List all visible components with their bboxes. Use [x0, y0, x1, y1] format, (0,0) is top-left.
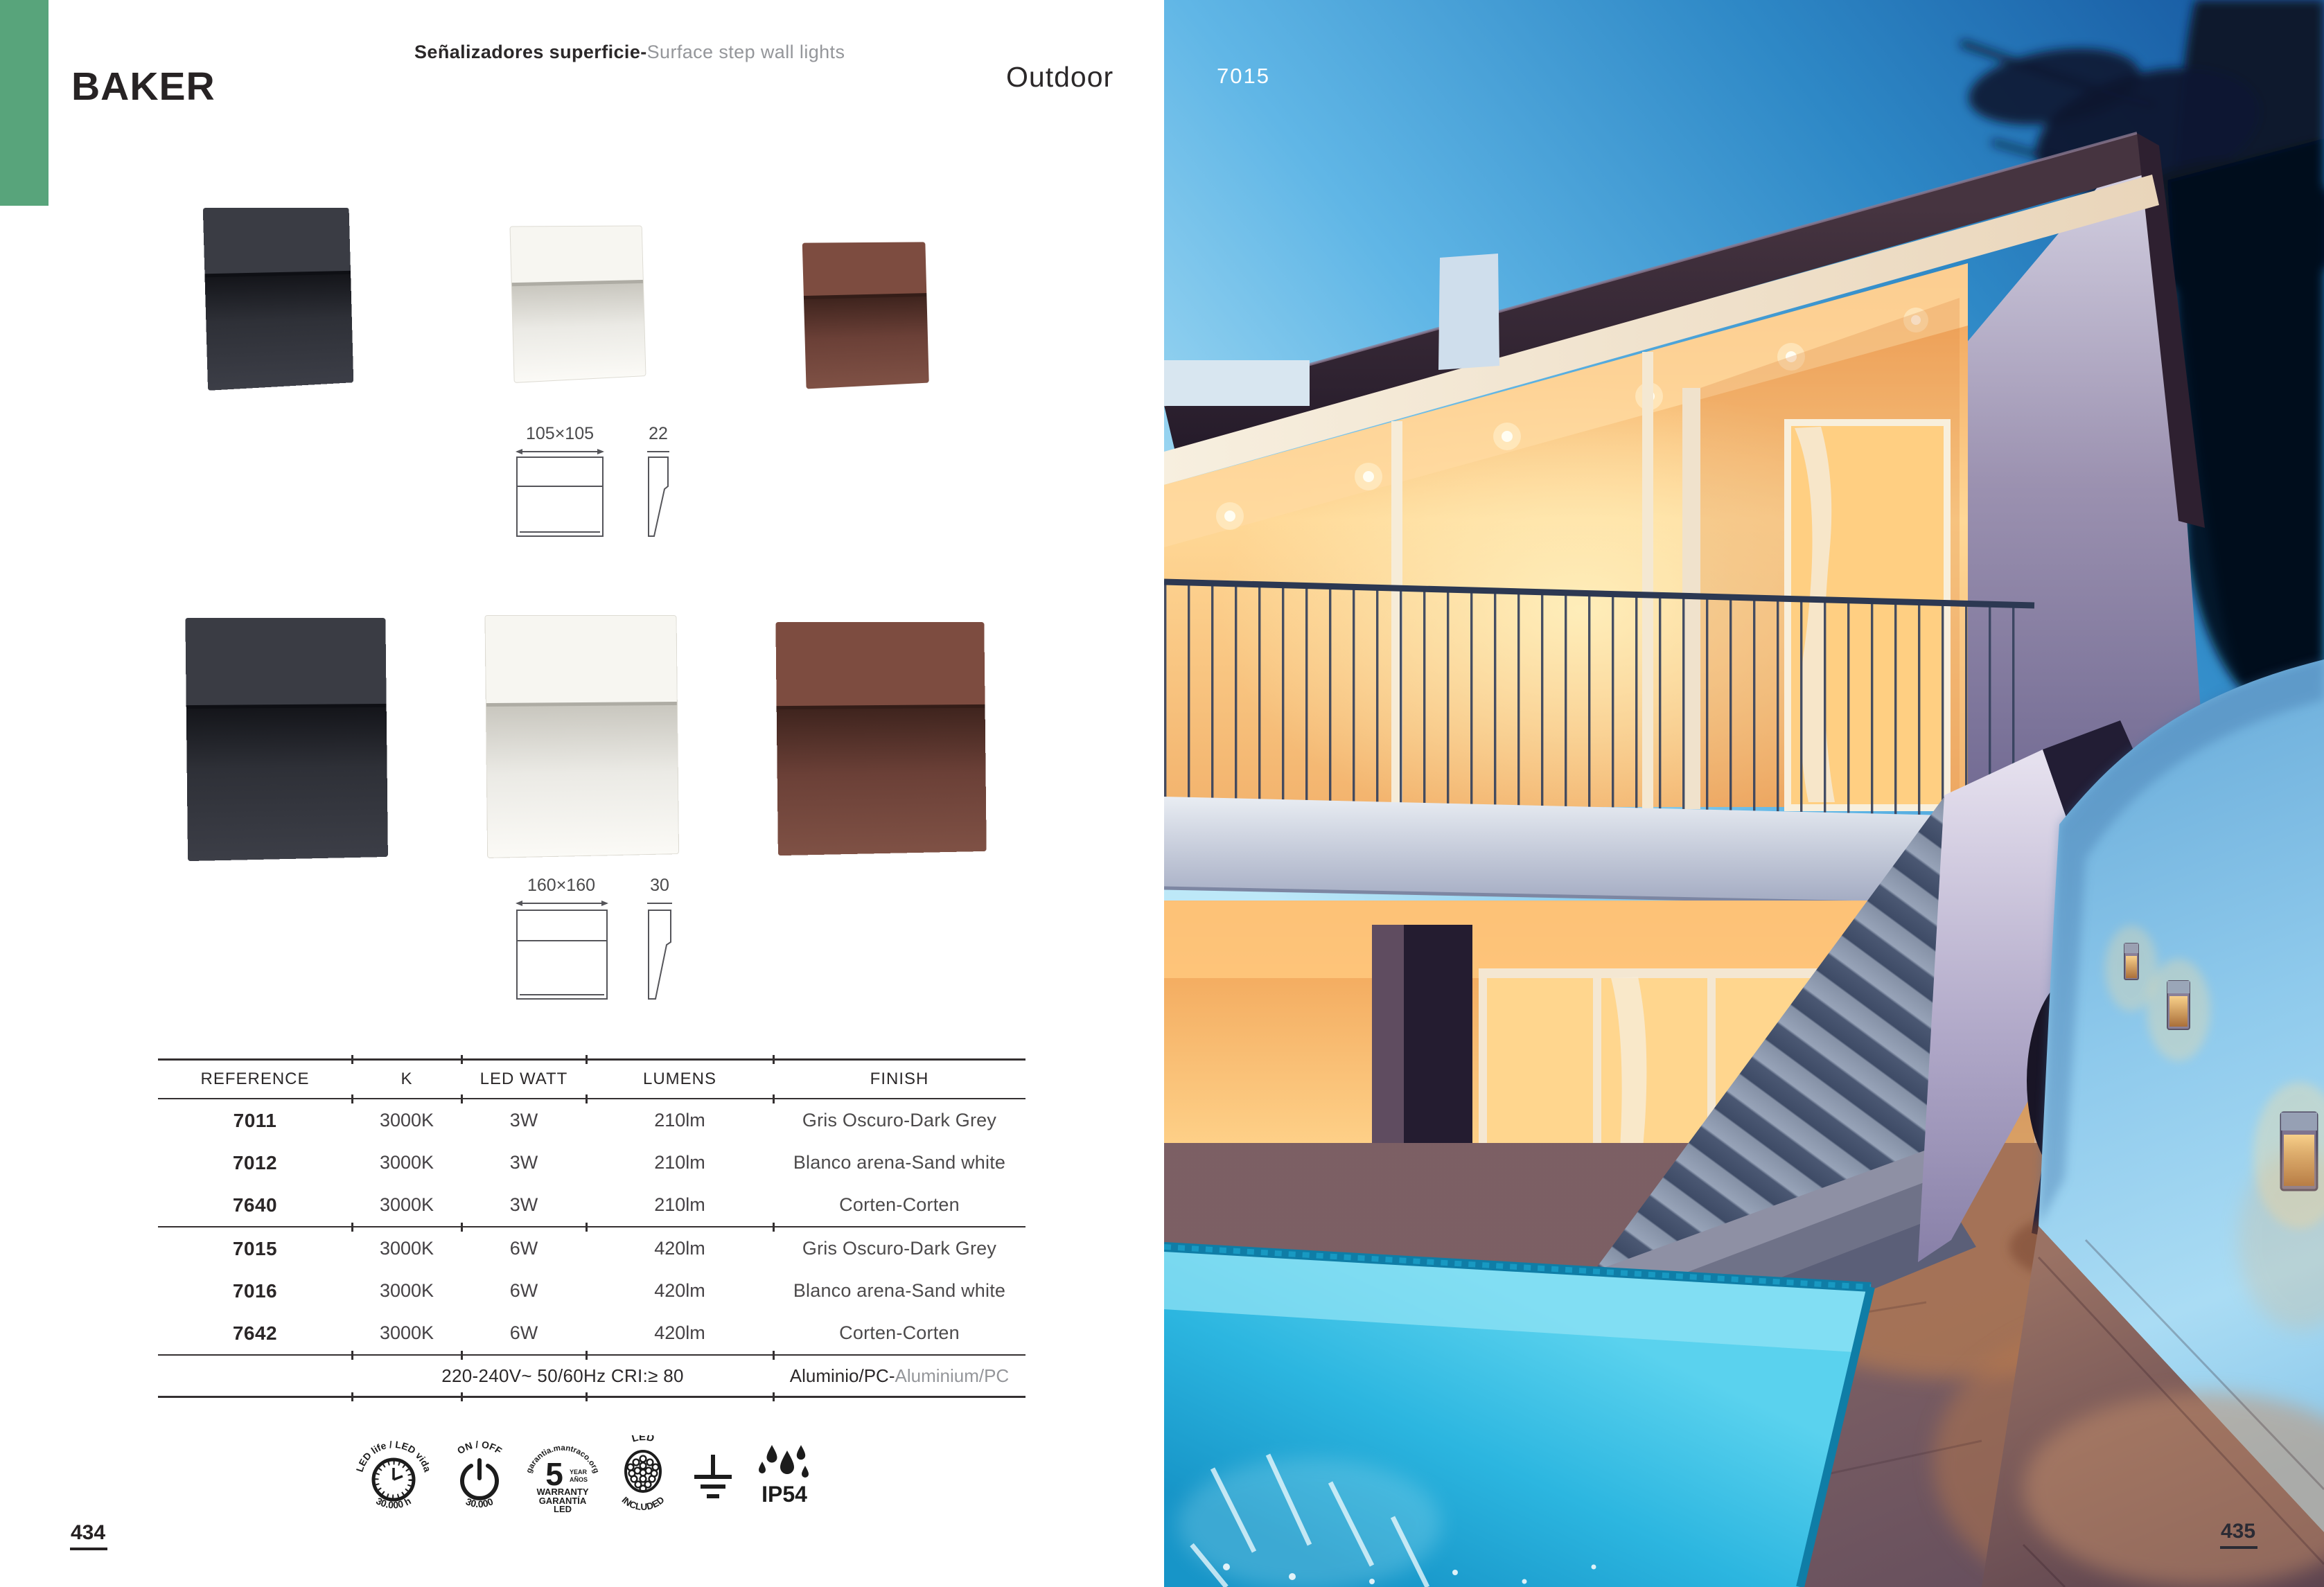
cell-reference: 7016 — [158, 1280, 352, 1302]
cell-lumens: 210lm — [586, 1110, 773, 1131]
cell-reference: 7640 — [158, 1194, 352, 1216]
svg-text:30.000 h: 30.000 h — [374, 1495, 413, 1510]
page-number-right: 435 — [2220, 1520, 2257, 1549]
table-rule — [158, 1226, 1025, 1227]
material-label-es: Aluminio/PC- — [790, 1365, 895, 1386]
warranty-year-label: YEAR — [570, 1469, 588, 1475]
cell-finish: Gris Oscuro-Dark Grey — [773, 1110, 1025, 1131]
baker-step-light — [2147, 959, 2210, 1061]
cell-lumens: 210lm — [586, 1194, 773, 1216]
table-rule — [158, 1098, 1025, 1099]
cell-reference: 7012 — [158, 1152, 352, 1174]
led-included-bottom-label: INCLUDED — [619, 1494, 666, 1512]
category-label-en: Surface step wall lights — [647, 42, 845, 62]
dimension-front-label: 105×105 — [526, 424, 594, 443]
cell-led-watt: 3W — [461, 1194, 586, 1216]
catalog-spread: BAKER Señalizadores superficie-Surface s… — [0, 0, 2324, 1587]
warranty-icon: garantia.mantraco.org 5 YEAR AÑOS WARRAN… — [527, 1435, 599, 1513]
dimension-front-label: 160×160 — [527, 876, 595, 895]
svg-text:ON / OFF: ON / OFF — [455, 1439, 504, 1457]
page-title: BAKER — [71, 64, 215, 109]
col-header-lumens: LUMENS — [586, 1070, 773, 1089]
product-image-sand-white-small — [509, 225, 646, 382]
dimension-depth-label: 22 — [649, 424, 668, 443]
svg-text:LED: LED — [631, 1435, 655, 1444]
product-image-corten-small — [802, 242, 929, 389]
section-label: Outdoor — [1006, 61, 1113, 94]
product-image-sand-white-large — [484, 615, 679, 858]
ground-symbol-icon — [687, 1435, 739, 1513]
electrical-spec: 220-240V~ 50/60Hz CRI:≥ 80 — [352, 1365, 773, 1387]
dimension-diagram-large: 160×160 30 — [511, 873, 686, 1004]
green-section-tab — [0, 0, 49, 206]
category-subtitle: Señalizadores superficie-Surface step wa… — [414, 42, 845, 63]
table-rule-bottom — [158, 1396, 1025, 1398]
cell-lumens: 420lm — [586, 1280, 773, 1302]
cell-k: 3000K — [352, 1194, 461, 1216]
led-included-icon: LED INCLUDED — [611, 1435, 675, 1513]
col-header-finish: FINISH — [773, 1070, 1025, 1089]
photo-illustration — [1164, 0, 2324, 1587]
table-row: 7642 3000K 6W 420lm Corten-Corten — [158, 1312, 1025, 1354]
table-header-row: REFERENCE K LED WATT LUMENS FINISH — [158, 1061, 1025, 1098]
ip54-icon: IP54 — [751, 1435, 818, 1513]
cell-k: 3000K — [352, 1110, 461, 1131]
table-row: 7016 3000K 6W 420lm Blanco arena-Sand wh… — [158, 1270, 1025, 1312]
chimney — [1438, 254, 1499, 370]
col-header-led-watt: LED WATT — [461, 1070, 586, 1089]
table-row: 7015 3000K 6W 420lm Gris Oscuro-Dark Gre… — [158, 1227, 1025, 1270]
certification-icons: LED life / LED vida 30.000 h ON / OFF 30… — [355, 1435, 818, 1513]
led-life-icon: LED life / LED vida 30.000 h — [355, 1435, 432, 1513]
material-label-en: Aluminium/PC — [895, 1365, 1010, 1386]
cell-lumens: 210lm — [586, 1152, 773, 1173]
table-row: 7640 3000K 3W 210lm Corten-Corten — [158, 1184, 1025, 1226]
category-label-es: Señalizadores superficie- — [414, 42, 647, 62]
cell-led-watt: 6W — [461, 1322, 586, 1344]
balcony-railing-bars — [1164, 583, 2034, 817]
led-life-bottom-label: 30.000 h — [374, 1495, 413, 1510]
cell-lumens: 420lm — [586, 1322, 773, 1344]
cell-lumens: 420lm — [586, 1238, 773, 1259]
cell-reference: 7015 — [158, 1238, 352, 1260]
warranty-anos-label: AÑOS — [570, 1476, 588, 1483]
cell-k: 3000K — [352, 1238, 461, 1259]
cell-k: 3000K — [352, 1152, 461, 1173]
ip-rating-label: IP54 — [762, 1482, 807, 1507]
table-rule-top — [158, 1058, 1025, 1061]
spec-table: REFERENCE K LED WATT LUMENS FINISH 7011 … — [158, 1058, 1025, 1398]
cell-finish: Blanco arena-Sand white — [773, 1152, 1025, 1173]
cell-led-watt: 6W — [461, 1280, 586, 1302]
cell-led-watt: 6W — [461, 1238, 586, 1259]
product-image-dark-grey-large — [185, 618, 388, 861]
product-image-corten-large — [775, 622, 986, 855]
cell-finish: Blanco arena-Sand white — [773, 1280, 1025, 1302]
col-header-reference: REFERENCE — [158, 1070, 352, 1089]
col-header-k: K — [352, 1070, 461, 1089]
cell-reference: 7642 — [158, 1322, 352, 1345]
product-image-dark-grey-small — [203, 208, 354, 391]
table-row: 7011 3000K 3W 210lm Gris Oscuro-Dark Gre… — [158, 1099, 1025, 1142]
cell-finish: Corten-Corten — [773, 1322, 1025, 1344]
table-row: 7012 3000K 3W 210lm Blanco arena-Sand wh… — [158, 1142, 1025, 1184]
page-number-left: 434 — [70, 1521, 107, 1550]
ambience-photo: 7015 — [1164, 0, 2324, 1587]
svg-text:INCLUDED: INCLUDED — [619, 1494, 666, 1512]
cell-k: 3000K — [352, 1322, 461, 1344]
on-off-top-label: ON / OFF — [455, 1439, 504, 1457]
photo-reference-label: 7015 — [1217, 64, 1270, 89]
warranty-line3: LED — [554, 1504, 572, 1513]
table-rule — [158, 1354, 1025, 1356]
cell-k: 3000K — [352, 1280, 461, 1302]
cell-reference: 7011 — [158, 1110, 352, 1132]
dimension-diagram-small: 105×105 22 — [511, 421, 686, 540]
on-off-icon: ON / OFF 30.000 — [445, 1435, 514, 1513]
cell-finish: Gris Oscuro-Dark Grey — [773, 1238, 1025, 1259]
cell-finish: Corten-Corten — [773, 1194, 1025, 1216]
led-included-top-label: LED — [631, 1435, 655, 1444]
cell-led-watt: 3W — [461, 1152, 586, 1173]
table-footer-row: 220-240V~ 50/60Hz CRI:≥ 80 Aluminio/PC-A… — [158, 1356, 1025, 1396]
cell-led-watt: 3W — [461, 1110, 586, 1131]
dimension-depth-label: 30 — [650, 876, 669, 895]
parapet — [1164, 360, 1310, 406]
